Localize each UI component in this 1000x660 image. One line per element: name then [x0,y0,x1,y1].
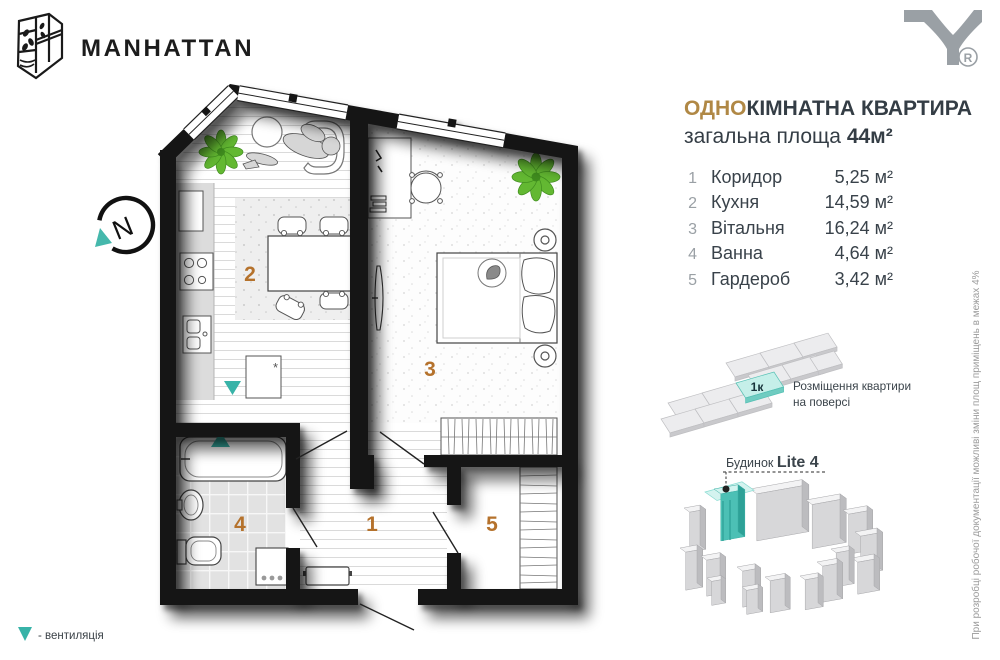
svg-text:При розробці робочої документа: При розробці робочої документації можлив… [970,270,982,639]
svg-text:Будинок Lite 4: Будинок Lite 4 [726,454,819,471]
svg-text:R: R [964,51,973,65]
svg-text:1: 1 [366,513,378,536]
svg-text:1к: 1к [751,380,765,394]
svg-text:4: 4 [234,513,246,536]
svg-text:2: 2 [244,263,256,286]
svg-text:на поверсі: на поверсі [793,395,850,409]
svg-text:*: * [273,360,278,375]
svg-text:3: 3 [424,358,436,381]
svg-text:N: N [108,211,137,246]
svg-text:Розміщення квартири: Розміщення квартири [793,379,911,393]
svg-text:- вентиляція: - вентиляція [38,630,104,642]
svg-text:5: 5 [486,513,498,536]
